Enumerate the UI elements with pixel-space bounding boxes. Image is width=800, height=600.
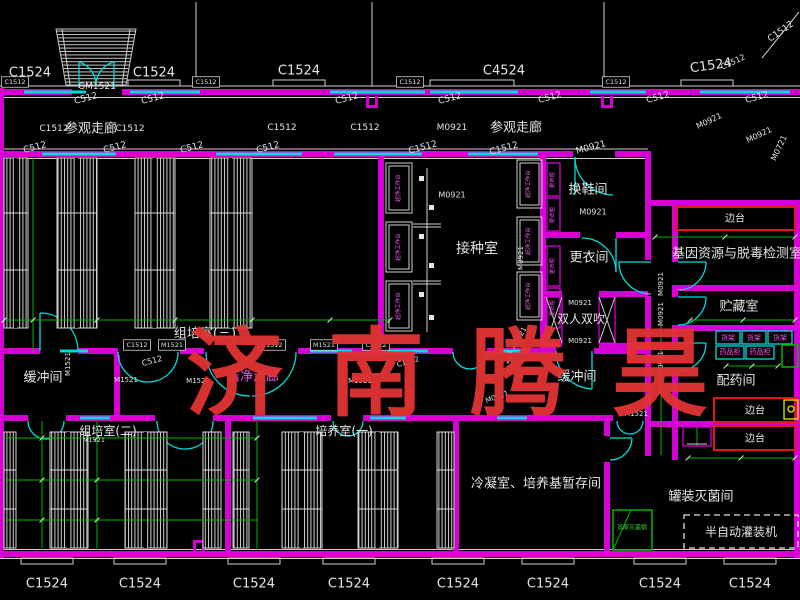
cad-label: 换鞋间 bbox=[568, 182, 607, 198]
labels-layer: C1524C1524C1524C4524C1524C1512C1512M0921… bbox=[2, 20, 800, 592]
cad-label: C1524 bbox=[527, 577, 569, 592]
work-table bbox=[413, 168, 441, 332]
cad-label: C4524 bbox=[483, 64, 525, 79]
rack bbox=[4, 158, 28, 328]
cad-label: M0921 bbox=[568, 299, 592, 307]
cad-label: 货架 bbox=[773, 333, 787, 342]
cad-label: C1512 bbox=[115, 124, 144, 134]
cad-label: 超净工作台 bbox=[394, 292, 402, 320]
cad-label: 缓冲间 bbox=[23, 371, 62, 386]
cad-label: M0921 bbox=[695, 111, 724, 131]
cad-label: 更衣柜 bbox=[548, 299, 556, 316]
cad-label: M0921 bbox=[657, 272, 665, 296]
cad-label: 接种室 bbox=[456, 240, 498, 257]
cad-label: C1524 bbox=[729, 577, 771, 592]
cad-label: C1524 bbox=[278, 64, 320, 79]
rack bbox=[437, 432, 454, 548]
floor-plan-canvas: C1524C1524C1524C4524C1524C1512C1512M0921… bbox=[0, 0, 800, 600]
cad-label: 半自动灌装机 bbox=[705, 525, 777, 539]
cad-label: M0921 bbox=[437, 123, 468, 133]
cad-label: 边台 bbox=[745, 432, 765, 445]
rack bbox=[358, 432, 398, 548]
cad-label: M0921 bbox=[579, 208, 606, 217]
rack bbox=[4, 432, 16, 548]
cad-label: M0721 bbox=[769, 134, 789, 163]
cad-label: C1512 bbox=[126, 341, 147, 349]
watermark-text: 济南腾昊 bbox=[186, 318, 754, 430]
cad-label: 参观走廊 bbox=[490, 120, 542, 136]
cad-label: M1521 bbox=[83, 436, 105, 444]
rack bbox=[125, 432, 167, 548]
cad-label: 边台 bbox=[725, 212, 745, 225]
cad-label: 更衣间 bbox=[569, 250, 608, 266]
cad-label: M0921 bbox=[517, 246, 525, 270]
cad-label: C1512 bbox=[399, 78, 420, 86]
rack bbox=[282, 432, 322, 548]
cad-label: 参观走廊 bbox=[65, 121, 117, 137]
cad-label: 基因资源与脱毒检测室 bbox=[672, 246, 800, 262]
cad-label: C1512 bbox=[719, 52, 746, 71]
cad-label: C1524 bbox=[639, 577, 681, 592]
rack bbox=[135, 158, 175, 328]
cad-label: C1512 bbox=[766, 20, 796, 45]
cad-label: 更衣柜 bbox=[548, 257, 556, 274]
cad-label: C1524 bbox=[26, 577, 68, 592]
cad-label: C1512 bbox=[267, 123, 296, 133]
cad-label: C1524 bbox=[437, 577, 479, 592]
rack bbox=[57, 158, 97, 328]
cad-label: 超净工作台 bbox=[394, 174, 402, 202]
rack bbox=[210, 158, 252, 328]
rack bbox=[203, 432, 221, 548]
rack bbox=[50, 432, 88, 548]
cad-label: C1524 bbox=[133, 66, 175, 81]
cad-label: C1512 bbox=[605, 78, 626, 86]
cad-label: M0921 bbox=[745, 125, 774, 145]
cad-label: C1524 bbox=[119, 577, 161, 592]
cad-label: 超净工作台 bbox=[524, 170, 532, 198]
cad-label: 超净工作台 bbox=[524, 227, 532, 255]
cad-label: 罐装灭菌间 bbox=[668, 490, 733, 505]
cad-label: 双扉灭菌锅 bbox=[617, 524, 647, 532]
cad-label: GM1521 bbox=[78, 82, 116, 92]
cad-label: M0921 bbox=[438, 191, 465, 200]
cad-floor-plan: C1524C1524C1524C4524C1524C1512C1512M0921… bbox=[0, 0, 800, 600]
cad-label: M1521 bbox=[114, 376, 138, 384]
cad-label: 超净工作台 bbox=[524, 282, 532, 310]
cad-label: C1524 bbox=[233, 577, 275, 592]
cad-label: C1524 bbox=[328, 577, 370, 592]
cad-label: 更衣柜 bbox=[548, 171, 556, 188]
cad-label: C1512 bbox=[350, 123, 379, 133]
cad-label: C1512 bbox=[4, 78, 25, 86]
cad-label: 冷凝室、培养基暂存间 bbox=[471, 476, 601, 492]
cad-label: C1512 bbox=[195, 78, 216, 86]
cad-label: 更衣柜 bbox=[548, 206, 556, 223]
cad-label: M1521 bbox=[64, 352, 72, 376]
entrance-canopy bbox=[56, 29, 136, 85]
cad-label: M1521 bbox=[161, 341, 183, 349]
rack bbox=[233, 432, 249, 548]
cad-label: 贮藏室 bbox=[719, 299, 758, 315]
cad-label: C512 bbox=[141, 354, 163, 368]
cad-label: 超净工作台 bbox=[394, 233, 402, 261]
